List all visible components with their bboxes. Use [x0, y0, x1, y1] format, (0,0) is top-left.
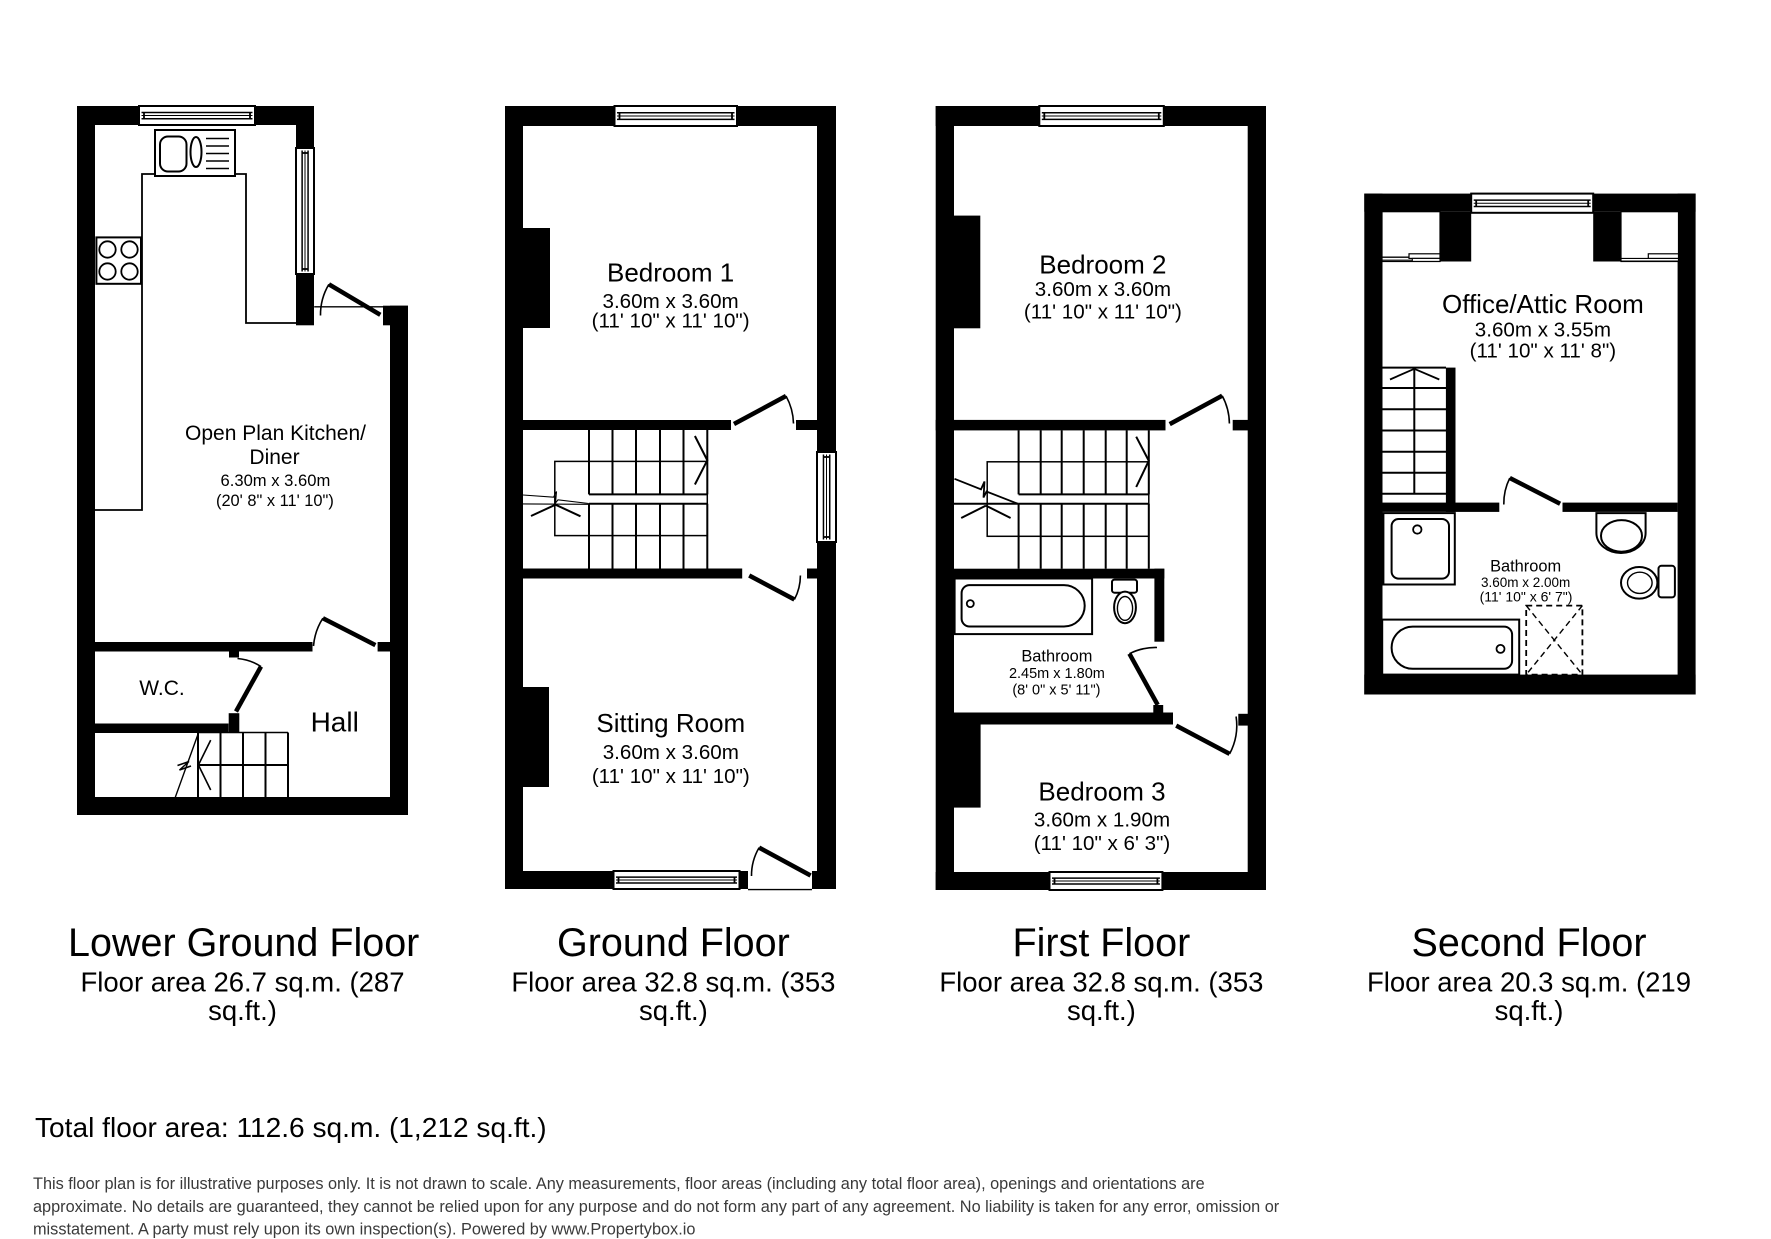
svg-text:misstatement. A party must rel: misstatement. A party must rely upon its… — [33, 1221, 695, 1239]
svg-text:W.C.: W.C. — [139, 677, 185, 700]
svg-text:Diner: Diner — [249, 446, 299, 469]
svg-text:Hall: Hall — [311, 707, 359, 738]
svg-text:(11' 10" x 11' 10"): (11' 10" x 11' 10") — [592, 310, 750, 333]
svg-text:Bedroom 2: Bedroom 2 — [1039, 249, 1166, 279]
svg-text:(11' 10" x 11' 8"): (11' 10" x 11' 8") — [1470, 340, 1617, 363]
svg-text:Floor area 26.7 sq.m. (287: Floor area 26.7 sq.m. (287 — [80, 967, 404, 998]
svg-text:6.30m x 3.60m: 6.30m x 3.60m — [221, 471, 331, 490]
svg-text:(8' 0" x 5' 11"): (8' 0" x 5' 11") — [1012, 683, 1100, 699]
svg-text:(11' 10" x 11' 10"): (11' 10" x 11' 10") — [1024, 301, 1182, 324]
svg-text:(11' 10" x 6' 3"): (11' 10" x 6' 3") — [1034, 832, 1171, 855]
svg-text:3.60m x 3.60m: 3.60m x 3.60m — [603, 741, 739, 764]
svg-text:2.45m x 1.80m: 2.45m x 1.80m — [1009, 666, 1105, 682]
svg-text:Total floor area: 112.6 sq.m.: Total floor area: 112.6 sq.m. (1,212 sq.… — [35, 1112, 547, 1143]
svg-text:3.60m x 1.90m: 3.60m x 1.90m — [1034, 809, 1170, 832]
svg-text:Floor area 32.8 sq.m. (353: Floor area 32.8 sq.m. (353 — [511, 967, 835, 998]
svg-text:Floor area 20.3 sq.m. (219: Floor area 20.3 sq.m. (219 — [1367, 967, 1691, 998]
svg-text:Office/Attic Room: Office/Attic Room — [1442, 289, 1644, 319]
svg-text:sq.ft.): sq.ft.) — [1495, 995, 1564, 1026]
svg-text:(11' 10" x 6' 7"): (11' 10" x 6' 7") — [1480, 589, 1573, 605]
svg-text:sq.ft.): sq.ft.) — [208, 995, 277, 1026]
svg-text:Bathroom: Bathroom — [1021, 648, 1092, 666]
svg-text:First Floor: First Floor — [1013, 921, 1191, 965]
svg-text:Floor area 32.8 sq.m. (353: Floor area 32.8 sq.m. (353 — [939, 967, 1263, 998]
svg-text:Open Plan Kitchen/: Open Plan Kitchen/ — [185, 422, 366, 445]
svg-text:Bedroom 1: Bedroom 1 — [607, 258, 734, 288]
svg-text:3.60m x 3.60m: 3.60m x 3.60m — [1035, 278, 1171, 301]
svg-text:This floor plan is for illustr: This floor plan is for illustrative purp… — [33, 1175, 1205, 1193]
svg-text:sq.ft.): sq.ft.) — [639, 995, 708, 1026]
svg-text:Lower Ground Floor: Lower Ground Floor — [68, 921, 419, 965]
svg-text:sq.ft.): sq.ft.) — [1067, 995, 1136, 1026]
svg-text:Ground Floor: Ground Floor — [557, 921, 790, 965]
svg-text:Sitting Room: Sitting Room — [596, 708, 745, 738]
svg-text:Second Floor: Second Floor — [1412, 921, 1647, 965]
svg-text:approximate. No details are gu: approximate. No details are guaranteed, … — [33, 1198, 1280, 1216]
svg-text:(20' 8" x 11' 10"): (20' 8" x 11' 10") — [216, 492, 334, 510]
svg-text:3.60m x 3.55m: 3.60m x 3.55m — [1475, 319, 1611, 342]
svg-text:(11' 10" x 11' 10"): (11' 10" x 11' 10") — [592, 765, 750, 788]
svg-text:Bedroom 3: Bedroom 3 — [1038, 777, 1165, 807]
svg-text:Bathroom: Bathroom — [1490, 558, 1561, 576]
